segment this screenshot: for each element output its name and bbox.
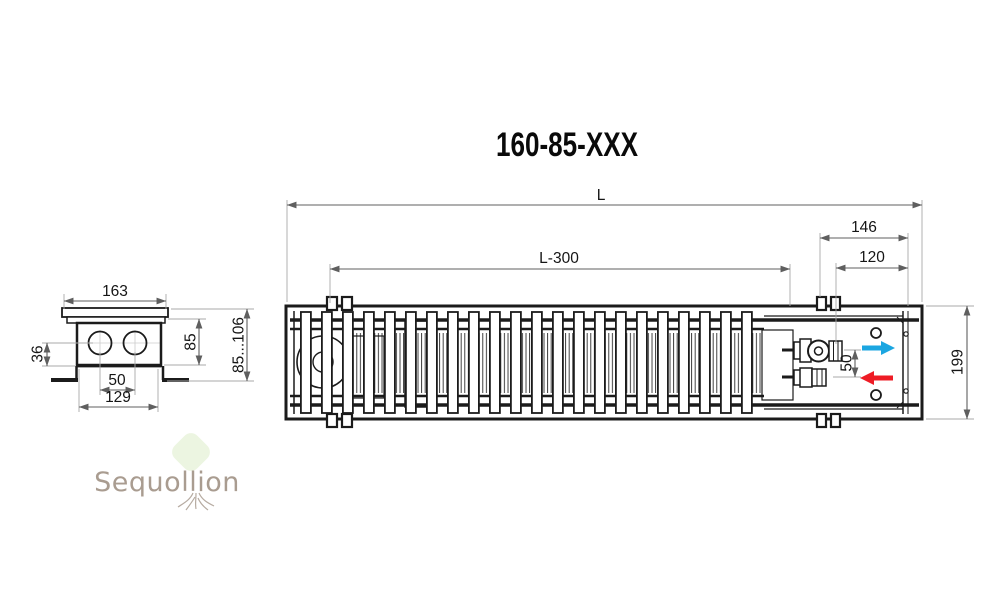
return-fitting <box>794 368 826 387</box>
page-title: 160-85-XXX <box>496 126 638 164</box>
supply-valve-assembly <box>794 339 842 362</box>
screw-hole <box>871 390 881 400</box>
dim-total-length: L <box>597 187 606 204</box>
brand-name: Sequollion <box>94 467 240 498</box>
dim-pipe-axis-to-bottom: 36 <box>29 345 46 362</box>
dim-body-height: 85 <box>182 333 199 350</box>
drawing-canvas: 160-85-XXX 163 36 <box>0 0 1000 600</box>
dim-bottom-width: 129 <box>105 389 131 406</box>
flow-supply-arrow-icon <box>862 341 895 355</box>
dim-top-width: 163 <box>102 283 128 300</box>
side-foot-left <box>51 366 78 380</box>
grille-slats <box>297 311 762 414</box>
side-view-dimensions: 163 36 50 129 85 85...106 <box>29 283 254 412</box>
dim-connection-offset: 120 <box>859 249 885 266</box>
side-lid <box>62 308 168 317</box>
dim-end-section: 146 <box>851 219 877 236</box>
top-view-plan <box>286 297 922 427</box>
side-foot-right <box>162 366 189 380</box>
dim-pipe-spacing: 50 <box>108 372 126 389</box>
end-plate <box>897 311 908 414</box>
technical-drawing: 160-85-XXX 163 36 <box>0 0 1000 600</box>
flow-return-arrow-icon <box>860 371 893 385</box>
dim-grille-length: L-300 <box>539 250 579 267</box>
dim-install-height-range: 85...106 <box>230 317 247 373</box>
side-body <box>77 323 161 366</box>
screw-hole <box>871 328 881 338</box>
brand-watermark: Sequollion <box>94 429 240 510</box>
dim-connection-spacing: 50 <box>838 354 855 372</box>
dim-body-width: 199 <box>949 349 966 375</box>
heat-exchanger <box>762 330 793 400</box>
